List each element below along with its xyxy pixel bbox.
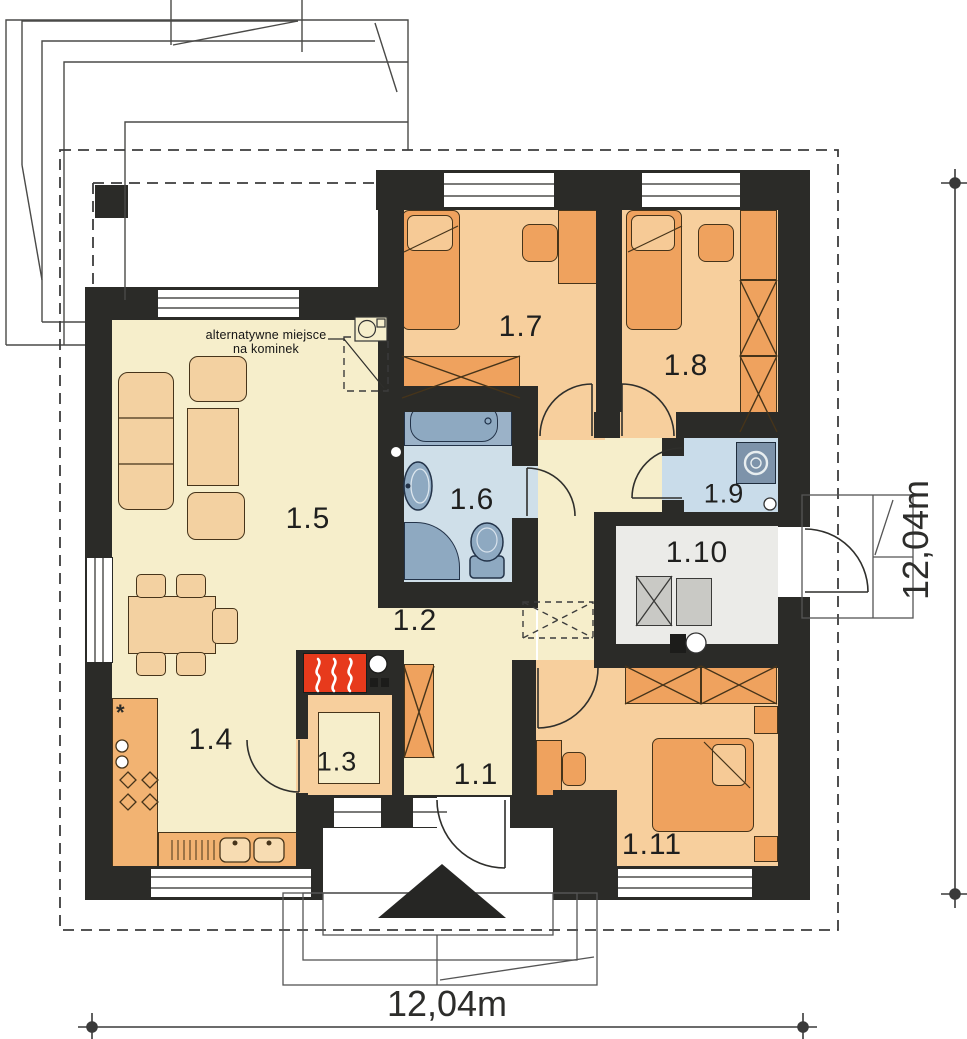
fireplace-annotation: alternatywne miejsce na kominek [196, 329, 336, 357]
alt-fireplace-marker [328, 337, 388, 391]
fireplace-annotation-line2: na kominek [196, 343, 336, 357]
flame-icon [317, 659, 352, 691]
utility-knob [764, 498, 776, 510]
floor-plan: 12,04m 12,04m 1.1 1.2 1.3 1.4 1.5 1.6 1.… [0, 0, 967, 1039]
window-glazing [95, 184, 753, 888]
dimension-bottom-label: 12,04m [387, 983, 507, 1024]
room-label-1-2: 1.2 [393, 604, 438, 638]
room-label-1-6: 1.6 [450, 483, 495, 517]
washer-details [745, 452, 767, 474]
room-label-1-11: 1.11 [622, 828, 682, 862]
room-label-1-4: 1.4 [189, 723, 234, 757]
fridge-symbol: * [116, 700, 125, 726]
dimension-right-label: 12,04m [895, 480, 936, 600]
plan-linework: 12,04m 12,04m [0, 0, 967, 1039]
stove-icon [116, 740, 158, 810]
entrance-arrow-icon [378, 864, 506, 918]
room-label-1-3: 1.3 [317, 747, 358, 778]
room-label-1-8: 1.8 [664, 349, 709, 383]
fireplace-annotation-line1: alternatywne miejsce [196, 329, 336, 343]
hall-closet-dashed [523, 602, 593, 638]
room-label-1-1: 1.1 [454, 758, 499, 792]
dimension-right [941, 169, 967, 908]
fireplace-side-icons [369, 655, 389, 687]
sofa-cushion-lines [118, 418, 174, 464]
room-label-1-9: 1.9 [704, 479, 745, 510]
boiler-floor-icon [670, 633, 706, 653]
door-arcs [247, 384, 868, 868]
boiler-x-mark [636, 576, 672, 626]
chimney-icon [355, 317, 387, 341]
roof-outline [6, 0, 408, 345]
wardrobe-x-marks [402, 280, 777, 758]
room-label-1-7: 1.7 [499, 310, 544, 344]
room-label-1-10: 1.10 [666, 536, 728, 570]
room-label-1-5: 1.5 [286, 502, 331, 536]
sink-icon [172, 838, 284, 862]
